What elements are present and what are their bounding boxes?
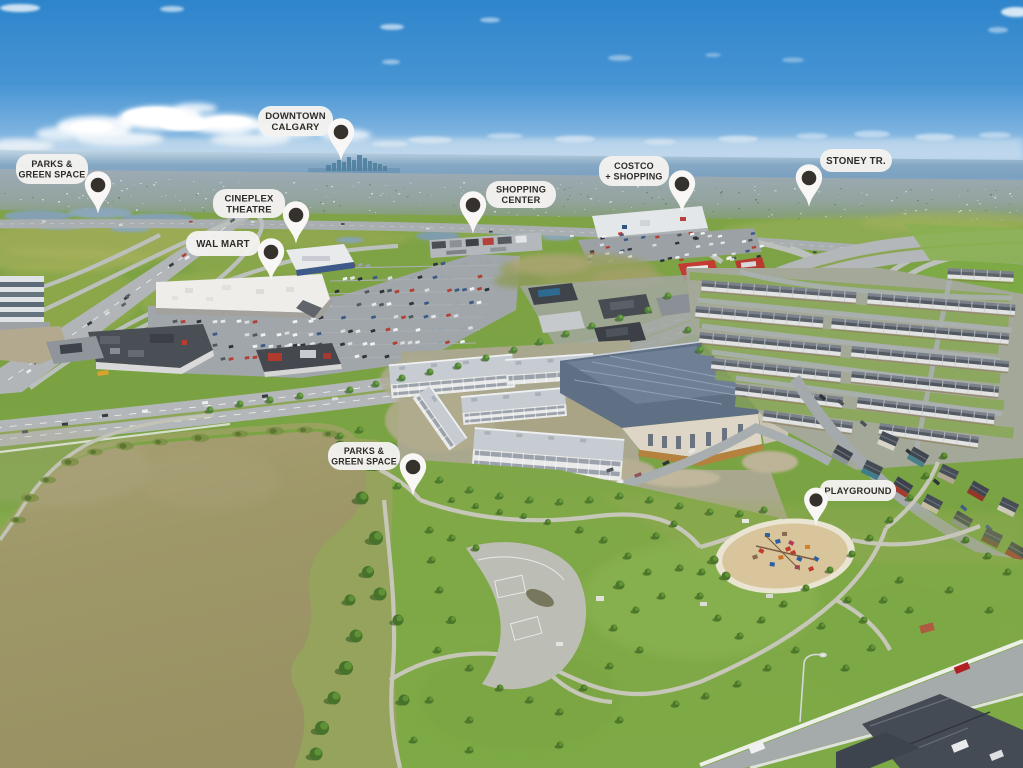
svg-text:PARKS &: PARKS & [344, 446, 385, 456]
svg-text:GREEN SPACE: GREEN SPACE [331, 456, 397, 466]
svg-text:STONEY TR.: STONEY TR. [826, 156, 886, 167]
svg-text:WAL MART: WAL MART [196, 239, 250, 250]
svg-text:PLAYGROUND: PLAYGROUND [824, 486, 891, 496]
svg-text:COSTCO: COSTCO [614, 161, 654, 171]
svg-text:PARKS &: PARKS & [31, 159, 73, 169]
svg-text:CALGARY: CALGARY [271, 122, 319, 133]
svg-text:CENTER: CENTER [502, 195, 541, 205]
svg-text:THEATRE: THEATRE [226, 204, 272, 215]
svg-text:GREEN SPACE: GREEN SPACE [18, 170, 85, 180]
svg-text:CINEPLEX: CINEPLEX [224, 193, 274, 204]
svg-text:SHOPPING: SHOPPING [496, 185, 546, 195]
svg-text:+ SHOPPING: + SHOPPING [605, 172, 662, 182]
svg-text:DOWNTOWN: DOWNTOWN [265, 111, 326, 122]
